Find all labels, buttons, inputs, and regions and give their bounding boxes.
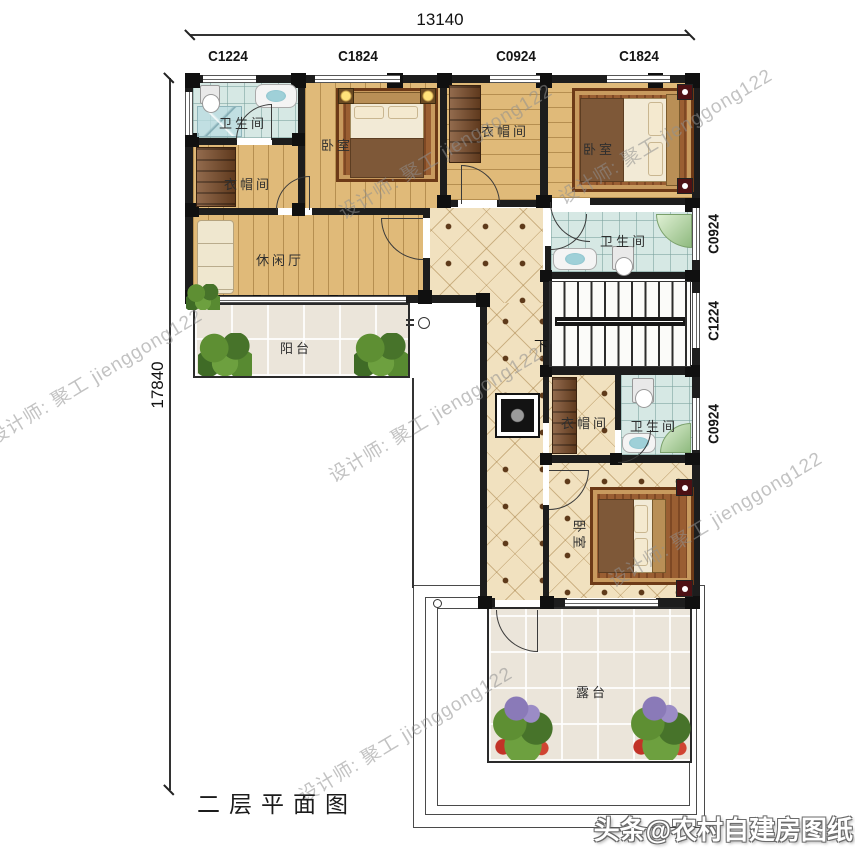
room-label-bath-topleft: 卫生间 — [219, 113, 267, 132]
column — [418, 290, 432, 304]
column — [437, 195, 451, 208]
nightstand — [677, 178, 693, 194]
nightstand-lamp — [338, 88, 354, 104]
wall-segment — [423, 208, 430, 218]
wall-segment — [480, 303, 487, 607]
wall-segment — [615, 375, 621, 430]
wall-segment — [543, 505, 549, 600]
room-label-cloak-left: 衣帽间 — [224, 174, 272, 193]
window-bath-left — [185, 92, 193, 135]
room-label-bath-middle: 卫生间 — [630, 416, 678, 435]
window-right-2 — [692, 293, 700, 348]
room-label-bath-right: 卫生间 — [600, 231, 648, 250]
dimension-line-left — [169, 78, 171, 790]
dimension-top: 13140 — [416, 10, 463, 30]
stair-arrow — [549, 330, 551, 344]
window-right-3 — [692, 398, 700, 450]
window-label-right-1: C0924 — [706, 214, 723, 254]
column — [685, 453, 700, 465]
pillow — [354, 106, 384, 119]
watermark-brand: 头条@农村自建房图纸 — [594, 810, 853, 847]
floor-hall-junction — [430, 208, 543, 303]
toilet — [632, 378, 654, 403]
bed-headboard — [350, 92, 424, 104]
column — [476, 293, 490, 307]
side-table — [495, 393, 540, 438]
wall-segment — [193, 208, 278, 215]
plant — [198, 333, 252, 376]
floor-plan-canvas: 13140 17840 C1224 C1824 C0924 C1824 C092… — [0, 0, 855, 855]
page-title: 二层平面图 — [197, 785, 357, 819]
column — [540, 596, 554, 609]
room-label-bedroom-bottom: 卧室 — [571, 519, 590, 551]
wall-segment — [545, 367, 700, 375]
column — [185, 73, 200, 88]
wall-segment — [590, 198, 700, 205]
plant — [354, 333, 408, 376]
sofa — [197, 220, 234, 294]
nightstand-lamp — [420, 88, 436, 104]
wall-segment — [543, 375, 549, 423]
pillow — [388, 106, 418, 119]
toilet — [200, 85, 220, 104]
nightstand — [677, 84, 693, 100]
column — [292, 133, 305, 146]
column — [478, 596, 492, 609]
window-top-4 — [607, 75, 670, 83]
drain-mark — [406, 324, 414, 326]
window-label-right-2: C1224 — [706, 301, 723, 341]
room-label-lounge: 休闲厅 — [256, 250, 304, 269]
nightstand — [676, 580, 693, 597]
window-label-top-2: C1824 — [338, 48, 378, 65]
plant — [628, 694, 694, 760]
room-label-terrace: 露台 — [576, 682, 608, 701]
window-label-right-3: C0924 — [706, 404, 723, 444]
drain-circle — [433, 599, 442, 608]
stair-handrail — [555, 317, 685, 326]
room-label-balcony: 阳台 — [280, 338, 312, 357]
wall-segment — [193, 138, 237, 145]
nightstand — [676, 479, 693, 496]
window-label-top-3: C0924 — [496, 48, 536, 65]
sink — [553, 248, 597, 270]
window-label-top-1: C1224 — [208, 48, 248, 65]
column — [540, 453, 552, 465]
drain-circle — [418, 317, 430, 329]
pillow — [634, 505, 648, 533]
watermark-designer: 设计师: 聚工 jienggong122 — [0, 301, 207, 450]
room-label-bedroom-topleft: 卧室 — [321, 135, 353, 154]
window-right-1 — [692, 208, 700, 260]
plant — [490, 694, 556, 760]
room-label-cloak-middle: 衣帽间 — [561, 413, 609, 432]
window-top-1 — [203, 75, 256, 83]
window-top-2 — [315, 75, 400, 83]
window-label-top-4: C1824 — [619, 48, 659, 65]
column — [685, 596, 700, 609]
window-balcony — [212, 296, 406, 303]
drain-mark — [406, 319, 414, 321]
dimension-left: 17840 — [148, 361, 168, 408]
dimension-line-top — [190, 34, 690, 36]
window-terrace — [565, 599, 658, 607]
